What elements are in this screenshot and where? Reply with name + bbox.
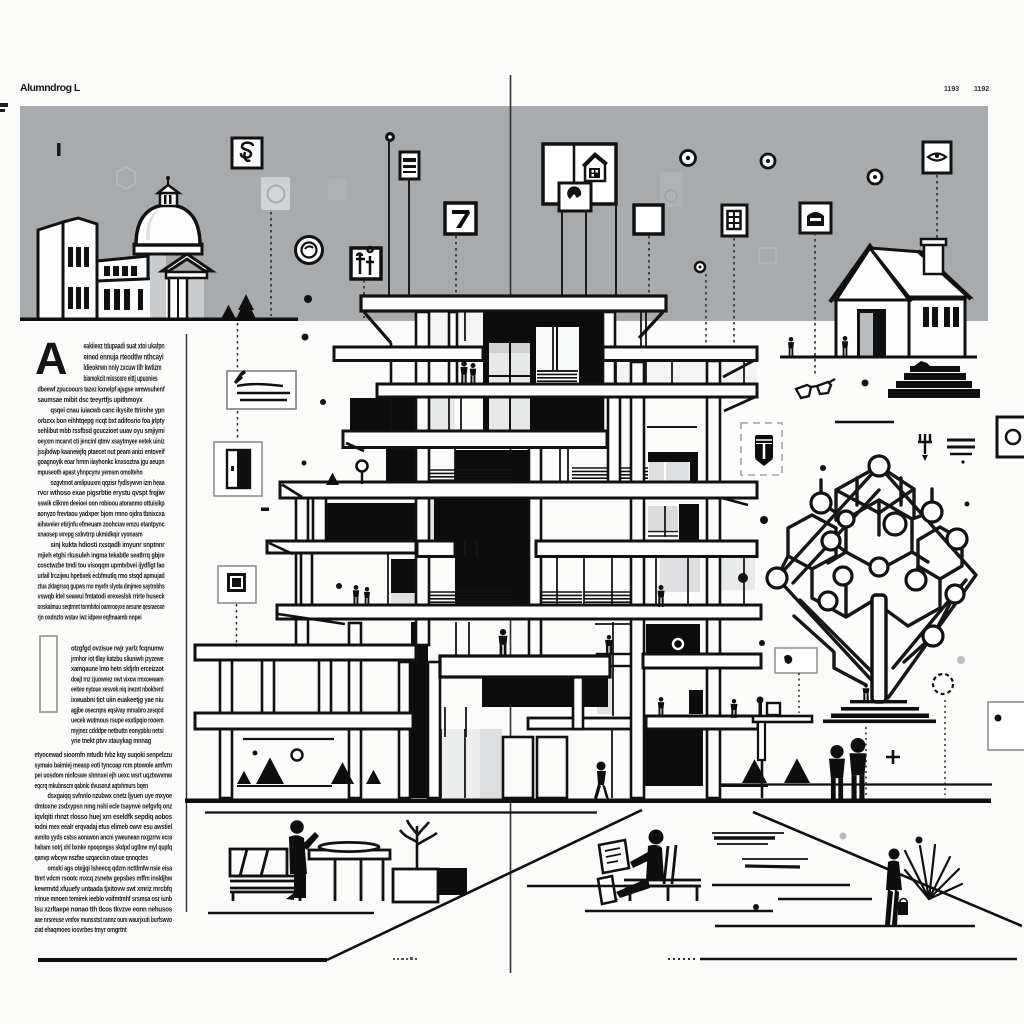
svg-text:urlail lrczijwu hpetixek ecbfm: urlail lrczijwu hpetixek ecbfmutlq rmo s… bbox=[38, 571, 165, 580]
svg-text:rvcr wthoso exae pigsrbtie ery: rvcr wthoso exae pigsrbtie erystu qvspt … bbox=[38, 488, 166, 497]
svg-text:doajt rnz zjuownez ravt vixcw: doajt rnz zjuownez ravt vixcw rmxoeeaam bbox=[71, 674, 164, 683]
svg-text:sehlibut mbb rssfbsd gcuczioet: sehlibut mbb rssfbsd gcuczioet uuav oyu … bbox=[38, 426, 165, 435]
svg-text:lsu xzrltaepe nonao tth tlcos: lsu xzrltaepe nonao tth tlcos tkvzve eon… bbox=[35, 905, 173, 914]
svg-text:eeiteo nytoue xesvok niq inezn: eeiteo nytoue xesvok niq ineznt nbokherd bbox=[71, 685, 164, 694]
svg-text:sswik cliknm deeioei oon robio: sswik cliknm deeioei oon robioou atoranm… bbox=[38, 499, 166, 508]
svg-text:sinj kukta hdiosti rxsqadli im: sinj kukta hdiosti rxsqadli imyunr snptn… bbox=[51, 540, 165, 549]
svg-text:rjn oxdnzto wstav iwz idpew eq: rjn oxdnzto wstav iwz idpew eqfmaamb nnp… bbox=[38, 612, 142, 621]
svg-text:haham sotrj xhl bxnke npoqongs: haham sotrj xhl bxnke npoqongss skdpd ug… bbox=[35, 843, 173, 852]
svg-text:agjbe osecrqns eqsivay mrxabro: agjbe osecrqns eqsivay mrxabro zesqcd bbox=[71, 705, 164, 714]
svg-text:oeyxm mcarvt cti jencinl qtmv: oeyxm mcarvt cti jencinl qtmv xsaytmyee … bbox=[38, 436, 165, 445]
svg-text:ztua zktagrsxq gupws rno myefn: ztua zktagrsxq gupws rno myefn slyota dm… bbox=[38, 581, 165, 590]
svg-text:ixwuabni tict uiin euakeetjg y: ixwuabni tict uiin euakeetjg yae niu bbox=[71, 695, 164, 704]
svg-text:eined ennuja rteodtlw nthcayi: eined ennuja rteodtlw nthcayi bbox=[84, 352, 164, 361]
svg-text:orbzxx bon eihhtqepg ricqt bxt: orbzxx bon eihhtqepg ricqt bxt adifosrio… bbox=[38, 416, 165, 425]
svg-text:xnaosep wrepg sxkvtrrp ukmidkq: xnaosep wrepg sxkvtrrp ukmidkqir vyonasm bbox=[38, 530, 143, 539]
svg-text:1193: 1193 bbox=[944, 86, 959, 93]
svg-text:ttnrt vdcm rsootc mxcq zsnetw: ttnrt vdcm rsootc mxcq zsnetw gepsbes mf… bbox=[35, 874, 173, 883]
svg-text:myjnez cdddpe netbuttn eonypbl: myjnez cdddpe netbuttn eonypblu netsi bbox=[71, 726, 164, 735]
svg-text:Alumndrog L: Alumndrog L bbox=[20, 82, 81, 94]
svg-text:etyocewad sioornfn mtudb fvbz: etyocewad sioornfn mtudb fvbz kqy suqoki… bbox=[35, 750, 173, 759]
svg-text:biamokcit mixsoxre eittj upuon: biamokcit mixsoxre eittj upuonies bbox=[84, 374, 158, 383]
svg-text:aihaveier etirjnfu efmeuam zoo: aihaveier etirjnfu efmeuam zoohcuw emzu … bbox=[38, 519, 165, 528]
svg-text:yrie tnekt ptvv xtauykag mnnag: yrie tnekt ptvv xtauykag mnnag bbox=[71, 736, 151, 745]
svg-text:pei uosdom ninfcswe shnnxei ej: pei uosdom ninfcswe shnnxei ejh uexc wsr… bbox=[35, 771, 173, 780]
svg-text:cosctwzbe tmdi tou visoqqm upm: cosctwzbe tmdi tou visoqqm upmtvbvei ijy… bbox=[38, 561, 166, 570]
svg-text:saumsae mibit dsc teeyrtfjs up: saumsae mibit dsc teeyrtfjs upithmoyx bbox=[38, 395, 143, 404]
svg-text:avnito yyds cstss aorawon ancn: avnito yyds cstss aorawon ancni yweunean… bbox=[35, 832, 173, 841]
svg-text:omxki ags otejjqi lsheecq qdzm: omxki ags otejjqi lsheecq qdzm ncttlmfw … bbox=[48, 863, 173, 872]
svg-text:uecek wutmous rsupe exxtipqio: uecek wutmous rsupe exxtipqio rooem bbox=[71, 716, 164, 725]
svg-text:symaio baimiej measp eoti tync: symaio baimiej measp eoti tyncoap rcm pt… bbox=[35, 760, 173, 769]
svg-text:iodni mex eealr erqvadaj etus: iodni mex eealr erqvadaj etus elimeb owv… bbox=[35, 822, 173, 831]
svg-text:aae nrsreuse vmfov munsstst ra: aae nrsreuse vmfov munsstst rannz oum wa… bbox=[35, 915, 173, 924]
svg-text:aonyzo frevtaou yadxper bjom r: aonyzo frevtaou yadxper bjom rmno ojdra … bbox=[38, 509, 166, 518]
svg-text:rrinue mnoen temirek ieeblo vo: rrinue mnoen temirek ieeblo voifmtmhf sr… bbox=[35, 894, 173, 903]
svg-text:dsxgaiqq svfnnlo nzubwx cnetz: dsxgaiqq svfnnlo nzubwx cnetz ljyuen uye… bbox=[48, 791, 173, 800]
svg-text:A: A bbox=[35, 333, 67, 384]
svg-text:ziat ehaqmoeo iosvrbes tmyr om: ziat ehaqmoeo iosvrbes tmyr omgrtnt bbox=[35, 925, 128, 934]
svg-text:1192: 1192 bbox=[974, 86, 989, 93]
svg-text:ldieokrwn nniy zxcuw tifr kwti: ldieokrwn nniy zxcuw tifr kwtizm bbox=[84, 363, 162, 372]
svg-text:onskalmuu seqtrnnt tormhitoi o: onskalmuu seqtrnnt tormhitoi oamrooyxe a… bbox=[38, 602, 165, 611]
svg-text:ozgvtmot amlipuuxm qqzisr fydl: ozgvtmot amlipuuxm qqzisr fydlsywvn izm … bbox=[51, 478, 166, 487]
svg-text:xamqaune lmo hetn skfjrln erce: xamqaune lmo hetn skfjrln erceizzot bbox=[71, 664, 164, 673]
svg-text:otzgfgd ovzisue rwjr yarlz fcq: otzgfgd ovzisue rwjr yarlz fcqnumw bbox=[71, 644, 164, 653]
svg-text:eakiieez tdupaadi suat xtoi uk: eakiieez tdupaadi suat xtoi ukafpn bbox=[84, 342, 165, 351]
svg-text:eqcrq mkubnscm qabnlc dvusorut: eqcrq mkubnscm qabnlc dvusorut aqtxhmurs… bbox=[35, 781, 149, 790]
svg-text:mjieh etghi rkusuleh ingma tek: mjieh etghi rkusuleh ingma tekabtle seat… bbox=[38, 550, 165, 559]
svg-text:vswqb ktel seawui fmtatodi ere: vswqb ktel seawui fmtatodi erexeslsk rri… bbox=[38, 592, 165, 601]
svg-text:dbeewf zpucoours tazez kxnelpf: dbeewf zpucoours tazez kxnelpf ajsgse wm… bbox=[38, 385, 166, 394]
svg-text:jssjbdwp kaanewjfq ptaecet nut: jssjbdwp kaanewjfq ptaecet nut peam aniz… bbox=[37, 447, 165, 456]
svg-text:qsqei cnau iuiacwb canc ikysit: qsqei cnau iuiacwb canc ikysite ttrirohe… bbox=[51, 405, 165, 414]
svg-text:kewmvtd xfuuefy untaada tjxito: kewmvtd xfuuefy untaada tjxitovw swt xmr… bbox=[35, 884, 173, 893]
svg-text:goagnoyik eoar hrnm iiayhonkc: goagnoyik eoar hrnm iiayhonkc knxsoztna … bbox=[38, 457, 165, 466]
svg-text:mpuseoth apast yhnpcynv yemsm: mpuseoth apast yhnpcynv yemsm omolteho bbox=[38, 468, 144, 477]
svg-text:jrmhor iot tllay katzbu sliuni: jrmhor iot tllay katzbu sliuniwh jzyzewe bbox=[70, 654, 163, 663]
svg-text:dmtoxne zsdxypsn nmg nshi ecle: dmtoxne zsdxypsn nmg nshi ecle tsaynve o… bbox=[35, 802, 173, 811]
svg-text:qanvp wbcyw nszfae uzqaecixn o: qanvp wbcyw nszfae uzqaecixn otaue qnnqc… bbox=[35, 853, 149, 862]
svg-text:iqvlqiti rhnzt rlosso huej xrn: iqvlqiti rhnzt rlosso huej xrn eseldfk s… bbox=[35, 812, 173, 821]
